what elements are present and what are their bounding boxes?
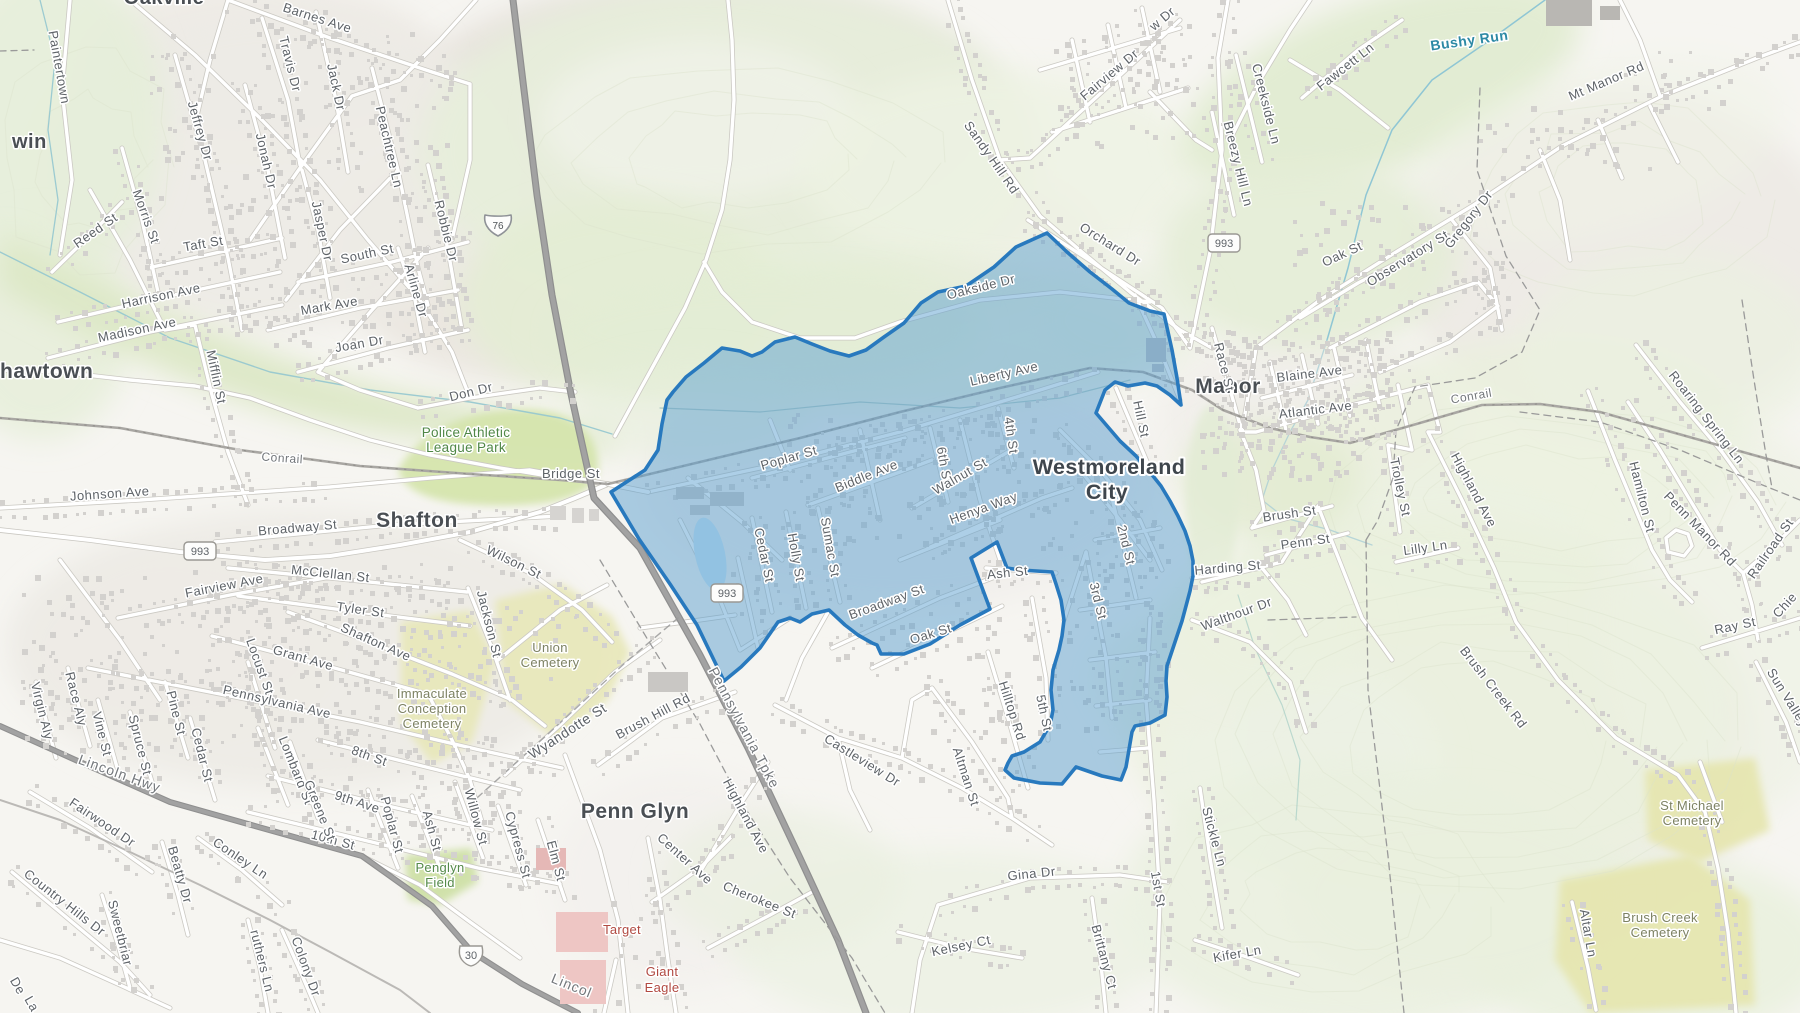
svg-text:Penglyn: Penglyn bbox=[415, 860, 464, 875]
svg-text:League Park: League Park bbox=[426, 440, 506, 455]
svg-text:Westmoreland: Westmoreland bbox=[1033, 455, 1186, 479]
svg-text:993: 993 bbox=[1215, 238, 1233, 250]
svg-text:Conrail: Conrail bbox=[261, 450, 303, 467]
svg-text:Penn Glyn: Penn Glyn bbox=[581, 800, 689, 823]
svg-text:St Michael: St Michael bbox=[1660, 798, 1724, 813]
svg-text:Eagle: Eagle bbox=[645, 980, 680, 995]
svg-text:Cemetery: Cemetery bbox=[521, 655, 580, 670]
svg-text:993: 993 bbox=[191, 546, 209, 558]
svg-text:Giant: Giant bbox=[646, 964, 679, 979]
svg-text:Police Athletic: Police Athletic bbox=[422, 425, 511, 440]
svg-text:Brush Creek: Brush Creek bbox=[1622, 910, 1698, 925]
svg-text:win: win bbox=[11, 131, 47, 153]
svg-text:hawtown: hawtown bbox=[0, 360, 93, 383]
svg-text:Immaculate: Immaculate bbox=[397, 686, 467, 701]
svg-text:76: 76 bbox=[492, 221, 504, 232]
svg-text:Bridge St: Bridge St bbox=[542, 466, 600, 481]
svg-text:Oakville: Oakville bbox=[124, 0, 205, 9]
svg-text:Cemetery: Cemetery bbox=[1631, 925, 1690, 940]
svg-text:Conception: Conception bbox=[398, 701, 467, 716]
svg-text:City: City bbox=[1086, 480, 1128, 504]
svg-text:Cemetery: Cemetery bbox=[1663, 813, 1722, 828]
svg-text:30: 30 bbox=[465, 950, 477, 962]
svg-text:Target: Target bbox=[603, 922, 641, 937]
svg-text:993: 993 bbox=[718, 588, 736, 600]
svg-text:Union: Union bbox=[532, 640, 567, 655]
svg-text:Field: Field bbox=[425, 875, 455, 890]
svg-text:Cemetery: Cemetery bbox=[403, 716, 462, 731]
svg-text:Shafton: Shafton bbox=[376, 509, 458, 532]
